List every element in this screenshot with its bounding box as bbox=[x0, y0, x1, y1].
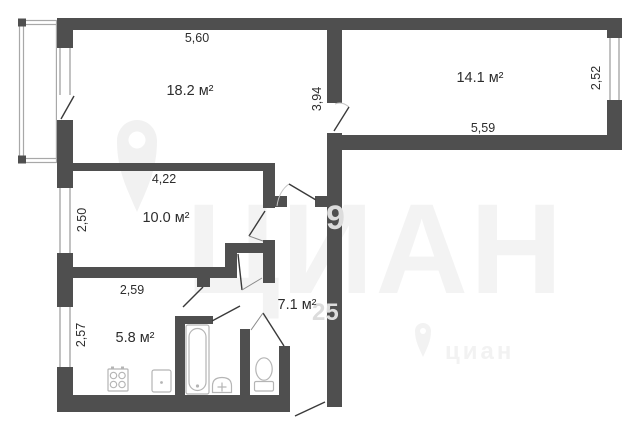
dimension-label-living-height: 3,94 bbox=[311, 87, 324, 111]
room-area-label-second-room: 10.0 м² bbox=[142, 211, 189, 226]
dimension-label-room-height: 2,50 bbox=[76, 208, 89, 232]
room-area-label-kitchen: 5.8 м² bbox=[116, 331, 155, 346]
dimension-label-bedroom-height: 2,52 bbox=[590, 66, 603, 90]
dimension-label-living-width: 5,60 bbox=[185, 32, 209, 45]
dimension-label-kitchen-height: 2,57 bbox=[75, 323, 88, 347]
dimension-label-room-width: 4,22 bbox=[152, 173, 176, 186]
room-area-label-living: 18.2 м² bbox=[166, 84, 213, 99]
floor-plan: ЦИАН циан bbox=[0, 0, 640, 427]
room-area-label-hallway: 7.1 м² bbox=[278, 298, 317, 313]
labels-layer: 18.2 м² 14.1 м² 10.0 м² 5.8 м² 7.1 м² 5,… bbox=[0, 0, 640, 427]
room-area-label-bedroom: 14.1 м² bbox=[456, 71, 503, 86]
dimension-label-bedroom-width: 5,59 bbox=[471, 122, 495, 135]
dimension-label-kitchen-width: 2,59 bbox=[120, 284, 144, 297]
